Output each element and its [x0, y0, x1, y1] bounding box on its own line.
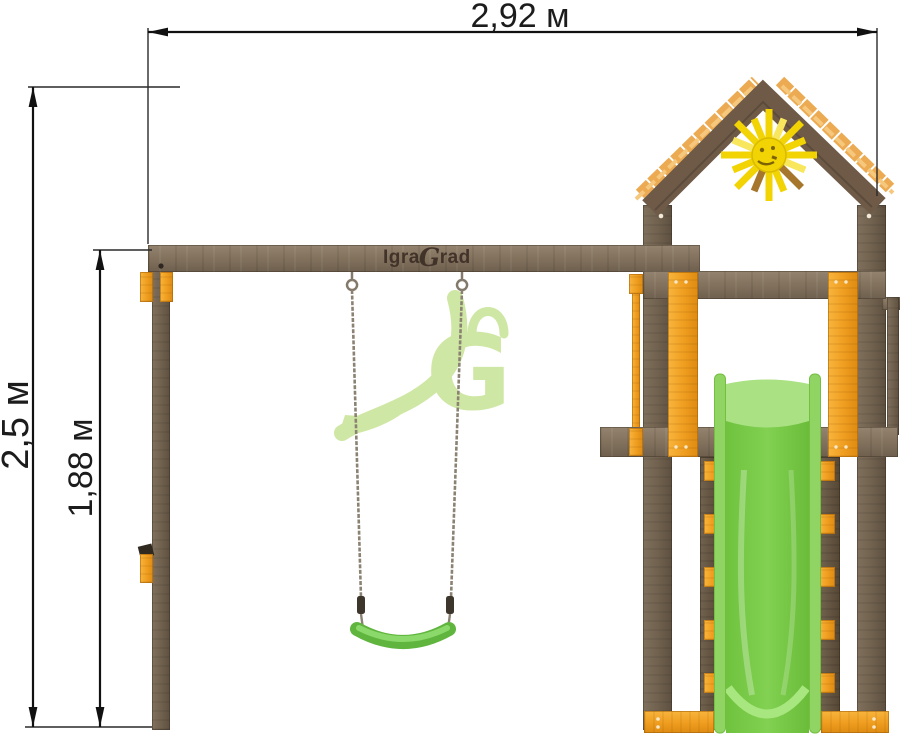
overall-height-dimension-label: 2,5 м — [0, 363, 37, 487]
dimension-overlay — [0, 0, 900, 739]
extension-lines — [25, 28, 877, 727]
dimension-lines — [33, 32, 877, 727]
frame-height-dimension-label: 1,88 м — [62, 395, 100, 541]
dimension-arrowheads — [29, 28, 877, 727]
dimension-diagram: G IgraGrad — [0, 0, 900, 739]
width-dimension-label: 2,92 м — [430, 0, 610, 36]
